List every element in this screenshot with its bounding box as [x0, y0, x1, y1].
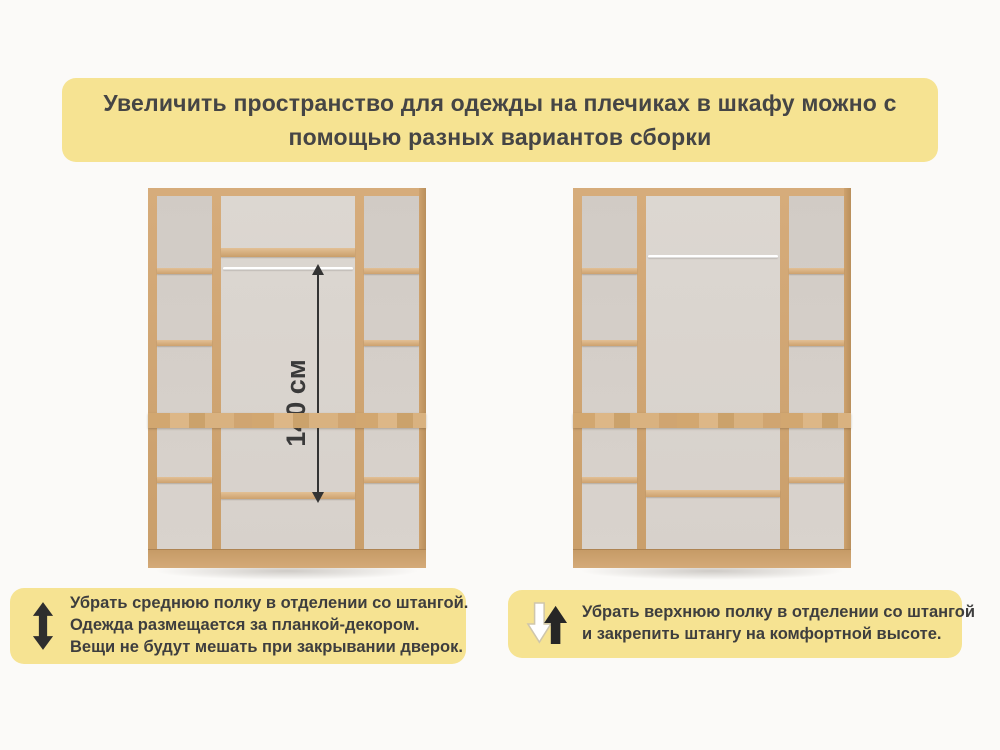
left-column	[582, 196, 637, 550]
headline-line-2: помощью разных вариантов сборки	[289, 124, 712, 151]
left-column	[157, 196, 212, 550]
shelf	[582, 340, 637, 346]
caption-text-left: Убрать среднюю полку в отделении со штан…	[70, 593, 468, 658]
caption-line: Одежда размещается за планкой-декором.	[70, 615, 468, 637]
shelf	[157, 340, 212, 346]
caption-card-right: Убрать верхнюю полку в отделении со штан…	[508, 590, 962, 658]
shelf	[157, 477, 212, 483]
shelf	[789, 340, 844, 346]
caption-card-left: Убрать среднюю полку в отделении со штан…	[10, 588, 466, 664]
shelf	[364, 340, 419, 346]
decor-plank	[148, 413, 426, 428]
shelf	[789, 268, 844, 274]
middle-section	[646, 196, 780, 550]
middle-section: 140 см	[221, 196, 355, 550]
shelf	[157, 268, 212, 274]
shelf	[364, 268, 419, 274]
plinth	[148, 549, 426, 568]
right-column	[364, 196, 419, 550]
hanging-rod	[223, 267, 353, 270]
caption-text-right: Убрать верхнюю полку в отделении со штан…	[582, 602, 975, 646]
headline-banner: Увеличить пространство для одежды на пле…	[62, 78, 938, 162]
caption-line: Убрать верхнюю полку в отделении со штан…	[582, 602, 975, 624]
plinth	[573, 549, 851, 568]
wardrobe-side-panel	[844, 188, 851, 568]
shelf	[582, 268, 637, 274]
bottom-shelf	[646, 490, 780, 497]
caption-line: и закрепить штангу на комфортной высоте.	[582, 624, 975, 646]
shelf	[364, 477, 419, 483]
dimension-label: 140 см	[281, 332, 311, 474]
top-shelf	[221, 248, 355, 257]
hanging-rod	[648, 255, 778, 258]
bottom-shelf	[221, 492, 355, 499]
shelf	[582, 477, 637, 483]
shelf	[789, 477, 844, 483]
wardrobe-figure-right	[573, 188, 851, 568]
wardrobe-figure-left: 140 см	[148, 188, 426, 568]
wardrobe-side-panel	[419, 188, 426, 568]
caption-line: Убрать среднюю полку в отделении со штан…	[70, 593, 468, 615]
caption-line: Вещи не будут мешать при закрывании двер…	[70, 637, 468, 659]
swap-arrows-icon	[526, 601, 568, 647]
right-column	[789, 196, 844, 550]
decor-plank	[573, 413, 851, 428]
dimension-arrow	[317, 273, 319, 494]
updown-arrow-icon	[32, 601, 54, 651]
headline-line-1: Увеличить пространство для одежды на пле…	[103, 90, 896, 117]
